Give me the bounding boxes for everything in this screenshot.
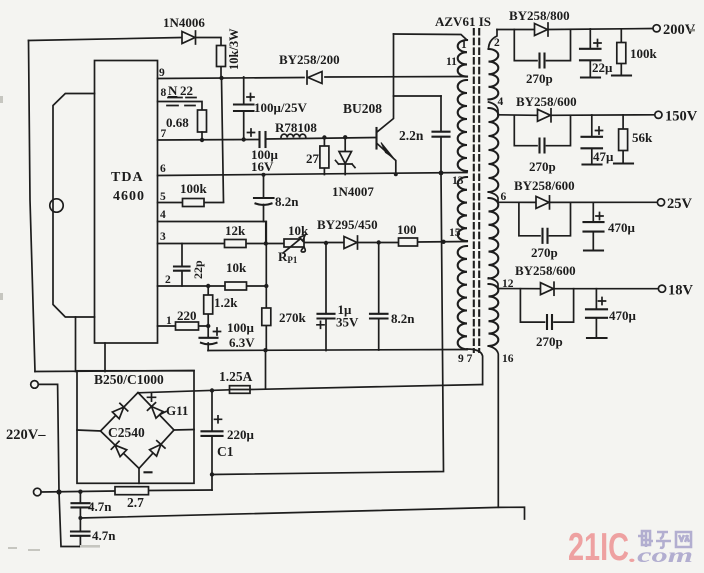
svg-text:G11: G11	[166, 403, 188, 418]
svg-text:4: 4	[160, 209, 166, 221]
svg-text:220μ: 220μ	[227, 427, 255, 442]
svg-text:470μ: 470μ	[609, 308, 637, 323]
svg-text:13: 13	[452, 175, 464, 187]
svg-text:270k: 270k	[279, 310, 307, 325]
svg-text:1: 1	[461, 39, 467, 51]
svg-text:25V: 25V	[667, 196, 693, 212]
svg-text:8.2n: 8.2n	[275, 194, 299, 209]
svg-text:270p: 270p	[529, 159, 556, 174]
svg-text:.com: .com	[629, 543, 693, 567]
svg-text:8: 8	[161, 87, 167, 99]
svg-text:6: 6	[160, 163, 166, 175]
svg-text:270p: 270p	[536, 334, 563, 349]
svg-text:3: 3	[160, 231, 166, 243]
svg-text:10k/3W: 10k/3W	[227, 28, 241, 70]
svg-text:18V: 18V	[668, 283, 694, 299]
svg-text:AZV61 IS: AZV61 IS	[435, 14, 491, 29]
svg-text:220: 220	[177, 308, 197, 323]
svg-text:15: 15	[449, 227, 461, 239]
svg-text:6.3V: 6.3V	[229, 335, 255, 350]
svg-text:9: 9	[159, 67, 165, 79]
svg-text:470μ: 470μ	[608, 220, 636, 235]
svg-text:1N4006: 1N4006	[163, 15, 205, 30]
svg-text:BY258/600: BY258/600	[515, 263, 576, 278]
svg-text:BU208: BU208	[343, 101, 382, 116]
svg-text:2: 2	[165, 274, 171, 286]
svg-text:2: 2	[494, 37, 500, 49]
svg-text:220V–: 220V–	[6, 427, 46, 443]
svg-text:C1: C1	[217, 444, 234, 459]
svg-text:B250/C1000: B250/C1000	[94, 372, 164, 387]
svg-text:56k: 56k	[632, 130, 653, 145]
svg-text:150V: 150V	[665, 109, 698, 125]
svg-text:21IC: 21IC	[568, 526, 629, 569]
svg-text:100μ/25V: 100μ/25V	[254, 100, 307, 115]
svg-text:2.2n: 2.2n	[399, 128, 424, 143]
svg-text:4600: 4600	[113, 189, 145, 204]
svg-text:270p: 270p	[526, 71, 553, 86]
svg-text:270p: 270p	[531, 245, 558, 260]
svg-text:TDA: TDA	[111, 170, 144, 185]
svg-text:4: 4	[498, 96, 504, 108]
svg-text:16: 16	[502, 353, 514, 365]
svg-text:C2540: C2540	[108, 425, 145, 440]
svg-text:27: 27	[306, 151, 320, 166]
svg-text:100k: 100k	[180, 181, 208, 196]
svg-text:1N4007: 1N4007	[332, 184, 374, 199]
svg-text:11: 11	[446, 56, 457, 68]
svg-text:5: 5	[160, 191, 166, 203]
svg-text:100: 100	[397, 222, 417, 237]
svg-text:4.7n: 4.7n	[92, 528, 116, 543]
svg-text:0.68: 0.68	[166, 115, 189, 130]
svg-text:22: 22	[180, 83, 193, 98]
svg-text:1.2k: 1.2k	[214, 295, 238, 310]
svg-text:35V: 35V	[336, 315, 359, 330]
svg-text:9 7: 9 7	[458, 353, 473, 365]
svg-text:BY295/450: BY295/450	[317, 217, 378, 232]
svg-text:8.2n: 8.2n	[391, 311, 415, 326]
svg-text:4.7n: 4.7n	[88, 499, 112, 514]
svg-text:BY258/200: BY258/200	[279, 52, 340, 67]
svg-text:12k: 12k	[225, 223, 246, 238]
svg-text:2.7: 2.7	[127, 495, 144, 510]
svg-text:N: N	[168, 83, 178, 98]
svg-text:22μ: 22μ	[592, 60, 613, 75]
svg-text:10k: 10k	[226, 260, 247, 275]
svg-text:6: 6	[501, 191, 507, 203]
svg-text:47μ: 47μ	[593, 149, 614, 164]
svg-text:1.25A: 1.25A	[219, 369, 253, 384]
svg-text:R78108: R78108	[275, 120, 317, 135]
svg-text:16V: 16V	[251, 159, 274, 174]
svg-text:BY258/600: BY258/600	[516, 94, 577, 109]
svg-text:100k: 100k	[630, 46, 658, 61]
svg-text:BY258/800: BY258/800	[509, 8, 570, 23]
svg-text:10k: 10k	[288, 223, 309, 238]
svg-text:BY258/600: BY258/600	[514, 178, 575, 193]
svg-text:22p: 22p	[191, 260, 205, 279]
svg-text:100μ: 100μ	[227, 320, 255, 335]
